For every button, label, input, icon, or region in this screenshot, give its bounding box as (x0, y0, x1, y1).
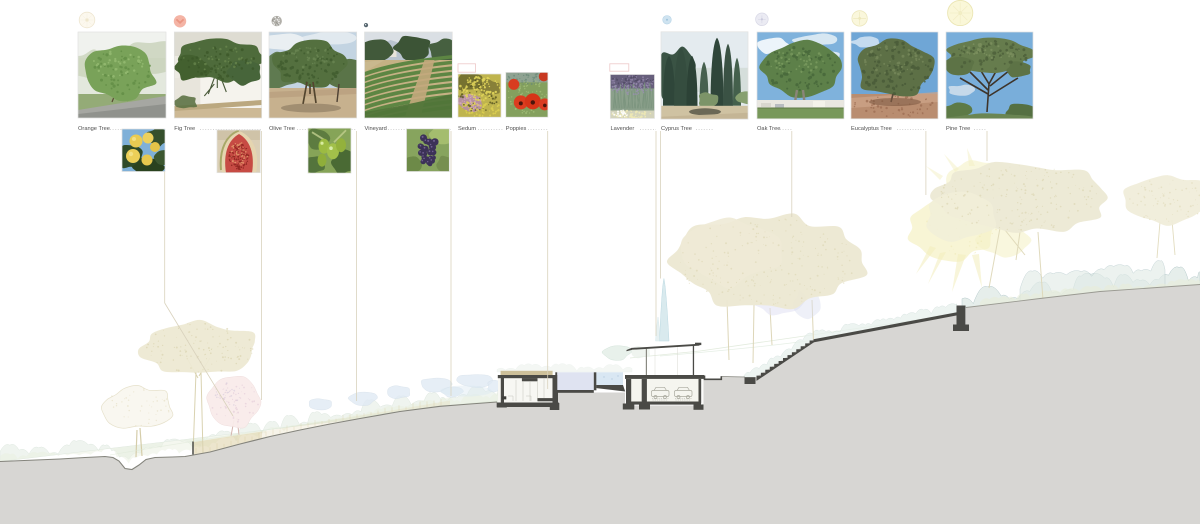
svg-text:Sedum: Sedum (458, 126, 476, 132)
svg-text:Orange Tree: Orange Tree (78, 126, 110, 132)
svg-text:Lavender: Lavender (611, 126, 635, 132)
svg-text:Poppies: Poppies (506, 126, 527, 132)
svg-text:Oak Tree: Oak Tree (757, 126, 780, 132)
svg-text:Eucalyptus Tree: Eucalyptus Tree (851, 126, 892, 132)
svg-text:Fig Tree: Fig Tree (174, 126, 195, 132)
svg-text:Vineyard: Vineyard (365, 126, 387, 132)
svg-text:Olive Tree: Olive Tree (269, 126, 295, 132)
svg-text:Cyprus Tree: Cyprus Tree (661, 126, 692, 132)
svg-text:Pine Tree: Pine Tree (946, 126, 970, 132)
